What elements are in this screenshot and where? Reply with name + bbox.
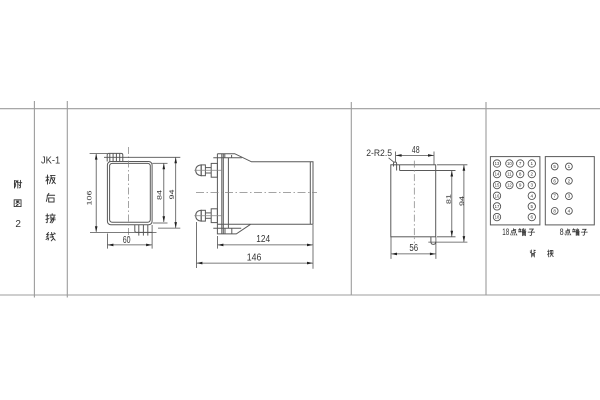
svg-text:JK-1: JK-1 [41,156,61,167]
svg-text:6: 6 [553,178,556,183]
svg-text:3: 3 [568,194,571,199]
svg-text:146: 146 [247,252,262,263]
svg-text:2: 2 [15,219,21,230]
svg-text:6: 6 [531,215,534,220]
svg-text:13: 13 [495,161,500,166]
svg-text:15: 15 [495,183,500,188]
svg-text:16: 16 [495,193,500,198]
svg-text:84: 84 [156,189,163,200]
svg-text:4: 4 [568,208,571,213]
svg-text:7: 7 [519,161,522,166]
svg-text:9: 9 [519,183,522,188]
svg-text:11: 11 [507,172,512,177]
svg-text:106: 106 [86,190,93,206]
svg-text:124: 124 [256,234,270,245]
svg-text:81: 81 [445,194,452,204]
svg-text:18: 18 [495,215,500,220]
svg-text:1: 1 [531,161,534,166]
svg-text:2: 2 [531,172,534,177]
svg-text:5: 5 [531,204,534,209]
svg-text:4: 4 [531,193,534,198]
svg-text:8: 8 [553,208,556,213]
svg-text:56: 56 [409,243,418,254]
svg-text:18: 18 [502,227,509,237]
svg-text:8: 8 [560,227,564,237]
svg-text:12: 12 [507,183,512,188]
svg-text:3: 3 [531,183,534,188]
svg-text:8: 8 [519,172,522,177]
svg-text:14: 14 [495,172,500,177]
svg-text:5: 5 [553,164,556,169]
svg-text:10: 10 [507,161,512,166]
svg-text:2: 2 [568,178,571,183]
svg-text:60: 60 [123,235,131,246]
svg-text:94: 94 [458,195,465,206]
svg-text:94: 94 [168,189,175,200]
svg-text:7: 7 [553,194,556,199]
svg-text:17: 17 [495,204,500,209]
svg-text:48: 48 [412,145,420,156]
svg-text:1: 1 [568,164,571,169]
svg-text:2-R2.5: 2-R2.5 [366,148,392,159]
